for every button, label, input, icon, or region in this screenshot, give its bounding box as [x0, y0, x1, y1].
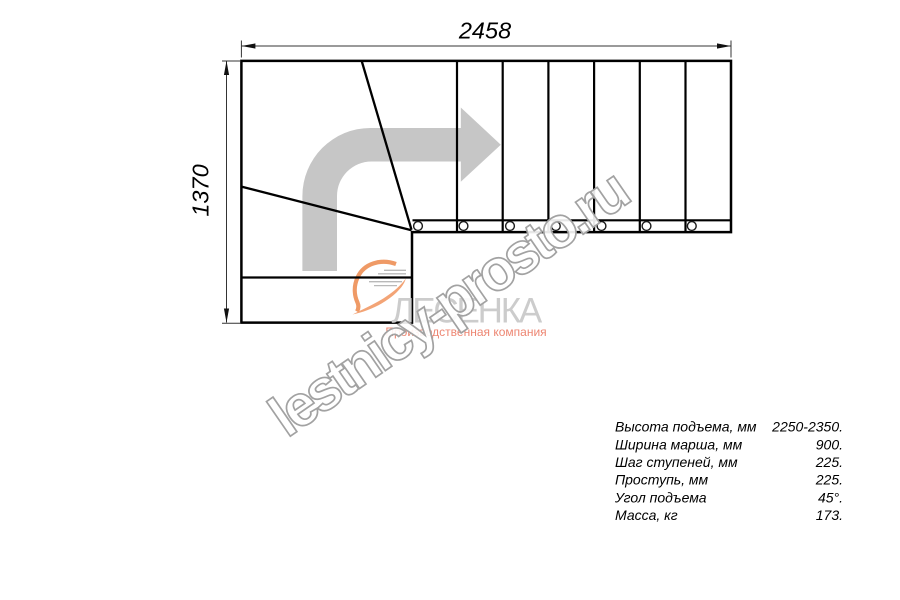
svg-text:173.: 173.: [816, 507, 843, 523]
svg-text:Проступь, мм: Проступь, мм: [615, 472, 709, 488]
svg-text:Ширина марша, мм: Ширина марша, мм: [615, 436, 743, 452]
svg-text:Высота подъема, мм: Высота подъема, мм: [615, 419, 757, 435]
svg-text:225.: 225.: [815, 472, 843, 488]
svg-text:Угол подъема: Угол подъема: [614, 489, 707, 505]
svg-text:2458: 2458: [458, 18, 511, 44]
svg-text:225.: 225.: [815, 454, 843, 470]
svg-text:900.: 900.: [816, 436, 843, 452]
svg-text:2250-2350.: 2250-2350.: [771, 419, 843, 435]
svg-text:1370: 1370: [188, 164, 214, 216]
svg-text:Масса, кг: Масса, кг: [615, 507, 678, 523]
svg-text:Шаг ступеней, мм: Шаг ступеней, мм: [615, 454, 738, 470]
svg-text:45°.: 45°.: [818, 489, 843, 505]
